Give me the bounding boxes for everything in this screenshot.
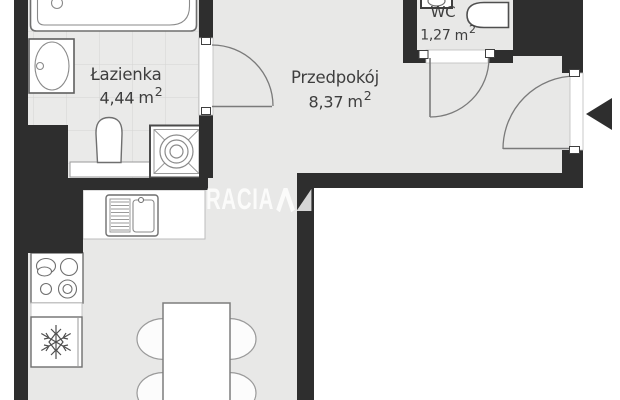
watermark: RACIA SA <box>206 185 343 215</box>
room-area-bathroom: 4,44m2 <box>58 86 204 107</box>
wall-bath-south <box>14 178 208 190</box>
room-area-hallway: 8,37m2 <box>268 90 412 111</box>
watermark-text-left: RACIA <box>206 183 274 217</box>
shower-tray-icon <box>150 126 203 178</box>
area-unit: m <box>455 28 468 44</box>
room-area-wc: 1,27m2 <box>412 25 484 43</box>
door-hinge <box>202 108 211 115</box>
kitchen-sink-icon <box>106 195 158 236</box>
entrance-arrow-icon <box>586 98 612 130</box>
kitchen-worktop <box>31 303 82 317</box>
wall-bath-right-bottom <box>199 115 213 178</box>
wall-left-lower <box>14 253 28 400</box>
wall-bath-chunk <box>14 125 68 178</box>
area-unit: m <box>138 88 153 107</box>
dining-table <box>163 303 230 400</box>
floor-plan: Łazienka 4,44m2 Przedpokój 8,37m2 WC 1,2… <box>0 0 620 400</box>
door-opening <box>570 73 583 150</box>
door-hinge <box>570 147 580 154</box>
room-label-wc: WC <box>413 5 473 21</box>
wall-living-right <box>297 188 314 400</box>
door-hinge <box>202 38 211 45</box>
bathtub-icon <box>31 0 197 31</box>
room-label-hallway: Przedpokój <box>263 69 407 86</box>
stove-icon <box>31 253 83 303</box>
door-hinge <box>419 51 428 59</box>
wall-left-upper <box>14 0 28 125</box>
fridge-icon <box>31 317 82 367</box>
area-sup: 2 <box>469 23 476 36</box>
area-value: 8,37 <box>309 92 344 111</box>
watermark-text-right: SA <box>313 183 343 217</box>
door-hinge <box>570 70 580 77</box>
door-opening <box>426 50 488 63</box>
wall-bath-right-top <box>199 0 213 38</box>
area-value: 1,27 <box>420 28 450 44</box>
area-unit: m <box>347 92 362 111</box>
area-sup: 2 <box>155 84 163 99</box>
area-sup: 2 <box>364 88 372 103</box>
door-hinge <box>486 50 495 58</box>
wall-right-block <box>513 0 583 56</box>
watermark-logo-icon <box>275 188 312 212</box>
area-value: 4,44 <box>100 88 135 107</box>
room-label-bathroom: Łazienka <box>58 66 194 83</box>
